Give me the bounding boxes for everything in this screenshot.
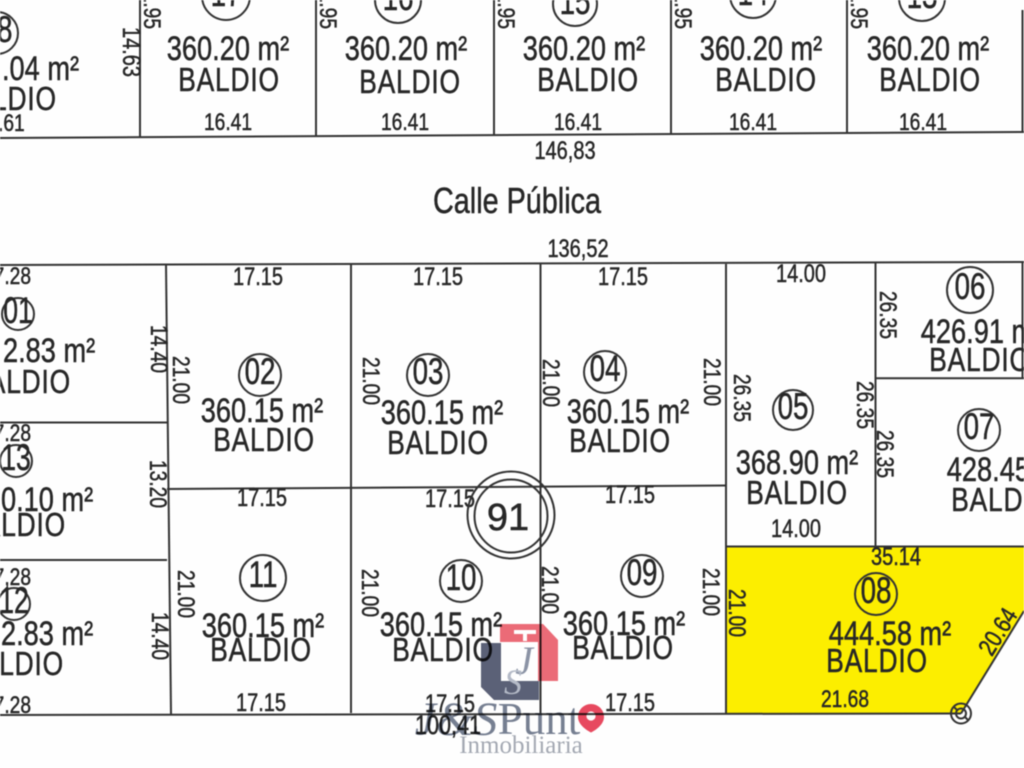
svg-text:13: 13 <box>907 0 938 16</box>
svg-text:21.00: 21.00 <box>172 570 200 618</box>
svg-text:03: 03 <box>413 350 444 392</box>
svg-text:BALDIO: BALDIO <box>213 422 315 458</box>
svg-text:14.00: 14.00 <box>771 515 821 543</box>
svg-text:BALDIO: BALDIO <box>537 62 639 98</box>
svg-text:14.63: 14.63 <box>117 27 145 77</box>
svg-text:06: 06 <box>955 265 986 307</box>
svg-text:146,83: 146,83 <box>534 137 595 165</box>
svg-text:BALDIO: BALDIO <box>0 507 66 543</box>
svg-text:07: 07 <box>964 405 995 447</box>
svg-text:16.41: 16.41 <box>381 108 429 136</box>
svg-text:21.00: 21.00 <box>167 356 195 404</box>
svg-text:14: 14 <box>738 0 769 13</box>
svg-text:BALDIO: BALDIO <box>951 482 1024 518</box>
svg-text:05: 05 <box>778 385 809 427</box>
svg-text:21.00: 21.00 <box>697 568 725 616</box>
svg-text:BALDIO: BALDIO <box>210 632 312 668</box>
svg-text:17.15: 17.15 <box>605 689 655 717</box>
svg-text:16: 16 <box>383 0 414 18</box>
svg-text:17.28: 17.28 <box>0 691 31 719</box>
svg-text:26.35: 26.35 <box>871 430 899 478</box>
svg-text:17.15: 17.15 <box>237 484 287 512</box>
svg-text:16.41: 16.41 <box>204 108 252 136</box>
svg-text:17.15: 17.15 <box>233 263 283 291</box>
svg-text:09: 09 <box>627 551 658 593</box>
svg-text:13.20: 13.20 <box>144 460 172 508</box>
svg-text:11: 11 <box>249 553 278 595</box>
svg-text:18: 18 <box>0 8 12 50</box>
svg-text:17: 17 <box>211 0 242 14</box>
svg-text:02: 02 <box>245 350 276 392</box>
svg-text:17.15: 17.15 <box>605 481 655 509</box>
svg-text:08: 08 <box>861 569 892 611</box>
svg-text:21.68: 21.68 <box>821 685 869 713</box>
svg-text:BALDIO: BALDIO <box>715 62 817 98</box>
svg-text:BALDIO: BALDIO <box>0 646 64 682</box>
svg-text:10: 10 <box>446 556 477 598</box>
svg-text:21.95: 21.95 <box>845 0 873 29</box>
svg-text:BALDIO: BALDIO <box>879 62 981 98</box>
svg-text:17.15: 17.15 <box>236 689 286 717</box>
svg-text:26.35: 26.35 <box>874 291 902 339</box>
svg-text:.61: .61 <box>0 109 25 137</box>
svg-text:BALDIO: BALDIO <box>569 423 671 459</box>
svg-text:16.41: 16.41 <box>729 108 777 136</box>
svg-text:91: 91 <box>487 497 529 539</box>
svg-text:BALDIO: BALDIO <box>572 630 674 666</box>
svg-text:BALDIO: BALDIO <box>746 475 848 511</box>
svg-text:14.00: 14.00 <box>776 260 826 288</box>
svg-text:BALDIO: BALDIO <box>387 425 489 461</box>
svg-text:21.00: 21.00 <box>723 589 751 637</box>
svg-text:21.95: 21.95 <box>138 0 166 29</box>
svg-text:BALDIO: BALDIO <box>929 342 1024 378</box>
svg-text:21.00: 21.00 <box>536 566 564 614</box>
svg-text:BALDIO: BALDIO <box>178 62 280 98</box>
svg-text:BALDIO: BALDIO <box>392 632 494 668</box>
svg-text:Inmobiliaria: Inmobiliaria <box>459 732 583 759</box>
svg-text:01: 01 <box>3 290 33 331</box>
svg-text:21.95: 21.95 <box>669 0 697 29</box>
svg-text:16.41: 16.41 <box>554 108 602 136</box>
svg-text:17.28: 17.28 <box>0 262 31 290</box>
svg-text:21.00: 21.00 <box>698 358 726 406</box>
svg-text:13: 13 <box>1 437 31 478</box>
svg-text:16.41: 16.41 <box>899 108 947 136</box>
svg-text:136,52: 136,52 <box>547 235 608 263</box>
svg-text:Calle Pública: Calle Pública <box>433 180 602 221</box>
svg-text:17.15: 17.15 <box>598 263 648 291</box>
svg-text:04: 04 <box>590 347 621 389</box>
svg-text:BALDIO: BALDIO <box>826 643 928 679</box>
svg-text:21.95: 21.95 <box>314 0 342 29</box>
svg-text:21.00: 21.00 <box>537 359 565 407</box>
svg-text:360.20 m²: 360.20 m² <box>345 29 467 68</box>
svg-text:14.40: 14.40 <box>146 612 174 660</box>
svg-text:26.35: 26.35 <box>851 381 879 429</box>
svg-text:35.14: 35.14 <box>871 543 921 571</box>
svg-text:17.15: 17.15 <box>413 263 463 291</box>
svg-text:BALDIO: BALDIO <box>0 364 71 400</box>
svg-text:15: 15 <box>560 0 591 22</box>
svg-text:26.35: 26.35 <box>728 374 756 422</box>
svg-text:BALDIO: BALDIO <box>359 64 461 100</box>
svg-text:21.95: 21.95 <box>492 0 520 29</box>
